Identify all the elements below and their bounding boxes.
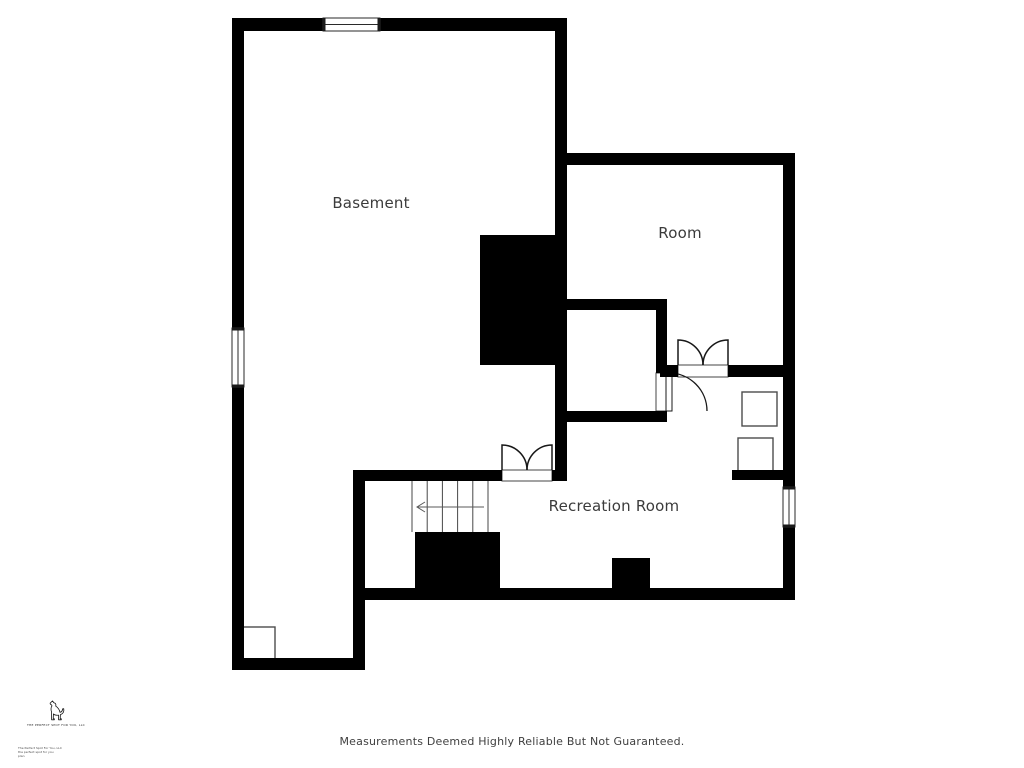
dog-logo-icon (45, 699, 67, 723)
wall-segment (380, 18, 567, 31)
wall-segment (555, 153, 795, 165)
fine-print-line: plan (18, 754, 62, 758)
solid-wall-block (612, 558, 650, 592)
wall-segment (353, 470, 502, 481)
solid-wall-block (480, 235, 557, 365)
door-swing-arc (527, 445, 552, 470)
wall-segment (232, 387, 244, 670)
room-label-room: Room (658, 224, 702, 242)
fixture-square (738, 438, 773, 472)
wall-segment (732, 470, 795, 480)
wall-segment (232, 18, 323, 31)
wall-segment (232, 18, 244, 328)
window-jamb (232, 385, 244, 388)
fixture-square (742, 392, 777, 426)
disclaimer-text: Measurements Deemed Highly Reliable But … (0, 735, 1024, 748)
floor-plan-page: Basement Room Recreation Room THE PERFEC… (0, 0, 1024, 768)
door-leaf (666, 373, 672, 411)
wall-segment (728, 365, 795, 377)
window-jamb (232, 328, 244, 331)
room-label-basement: Basement (332, 194, 409, 212)
window-jamb (783, 487, 795, 490)
wall-segment (557, 299, 667, 310)
fixture-square (240, 627, 275, 660)
room-label-recreation: Recreation Room (549, 497, 680, 515)
wall-segment (656, 299, 667, 373)
wall-segment (353, 588, 795, 600)
wall-segment (353, 470, 365, 670)
logo-caption: THE PERFECT SPOT FOR YOU, LLC (24, 723, 88, 727)
door-opening (502, 470, 552, 481)
door-swing-arc (703, 340, 728, 365)
window-jamb (783, 525, 795, 528)
door-opening (678, 365, 728, 377)
solid-wall-block (415, 532, 500, 592)
door-swing-arc (678, 340, 703, 365)
door-opening (656, 373, 667, 411)
floor-plan-drawing (0, 0, 1024, 768)
door-swing-arc (669, 373, 707, 411)
wall-segment (783, 527, 795, 597)
wall-segment (783, 153, 795, 487)
company-logo: THE PERFECT SPOT FOR YOU, LLC (24, 699, 88, 727)
window-jamb (323, 18, 326, 31)
door-swing-arc (502, 445, 527, 470)
wall-segment (557, 411, 667, 422)
window-jamb (378, 18, 381, 31)
wall-segment (232, 658, 365, 670)
